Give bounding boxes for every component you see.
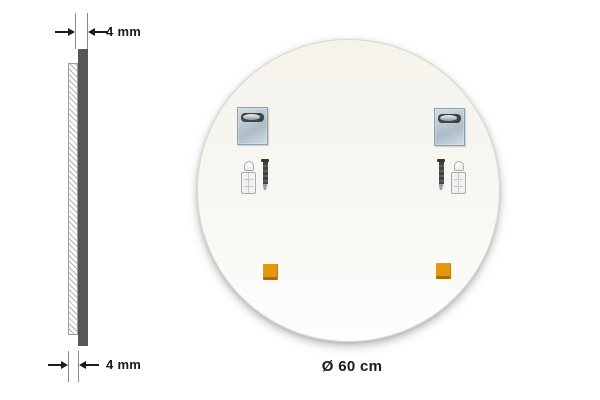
extension-line <box>68 351 69 382</box>
diameter-label: Ø 60 cm <box>197 358 507 375</box>
screw-icon <box>437 159 445 190</box>
screw-tip <box>439 184 444 190</box>
dimension-arrow-left <box>48 364 61 366</box>
thickness-label-bottom: 4 mm <box>106 357 141 372</box>
extension-line <box>75 13 76 49</box>
wall-plug-body <box>241 172 256 194</box>
arrowhead-left-icon <box>88 28 95 36</box>
thickness-label-top: 4 mm <box>106 24 141 39</box>
screw-body <box>263 162 268 184</box>
mirror-backing-side <box>68 63 78 335</box>
wall-plug-body <box>451 172 466 194</box>
keyhole-slot <box>438 114 461 123</box>
wall-plug-cap <box>454 161 464 171</box>
screw-body <box>439 162 444 184</box>
hanging-bracket-icon <box>434 108 465 146</box>
keyhole-slot <box>241 113 264 122</box>
mirror-product-image: 4 mm 4 mm <box>0 0 600 400</box>
dimension-arrow-right <box>86 364 99 366</box>
hanging-bracket-icon <box>237 107 268 145</box>
wall-plug-icon <box>451 161 466 194</box>
slot-washer <box>243 114 260 120</box>
adhesive-pad-icon <box>263 264 278 280</box>
arrowhead-right-icon <box>61 361 68 369</box>
screw-tip <box>263 184 268 190</box>
wall-plug-cap <box>244 161 254 171</box>
dimension-arrow-left <box>55 31 69 33</box>
arrowhead-left-icon <box>79 361 86 369</box>
mirror-glass-side <box>78 49 88 346</box>
mirror-back-panel <box>197 39 500 342</box>
wall-plug-icon <box>241 161 256 194</box>
screw-icon <box>261 159 269 190</box>
slot-washer <box>440 115 457 121</box>
adhesive-pad-icon <box>436 263 451 279</box>
arrowhead-right-icon <box>68 28 75 36</box>
